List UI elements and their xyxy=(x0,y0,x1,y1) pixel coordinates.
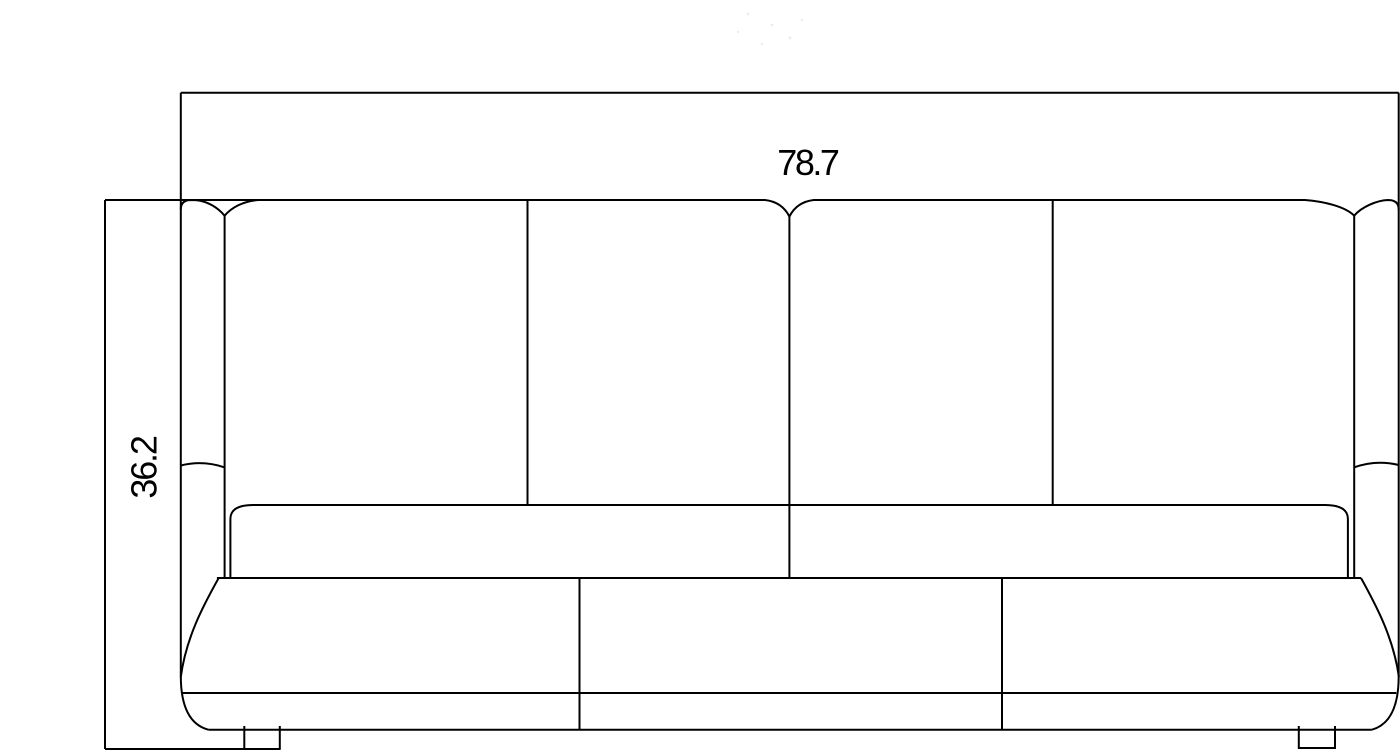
svg-text:36.2: 36.2 xyxy=(123,436,164,498)
svg-text:78.7: 78.7 xyxy=(777,142,839,183)
